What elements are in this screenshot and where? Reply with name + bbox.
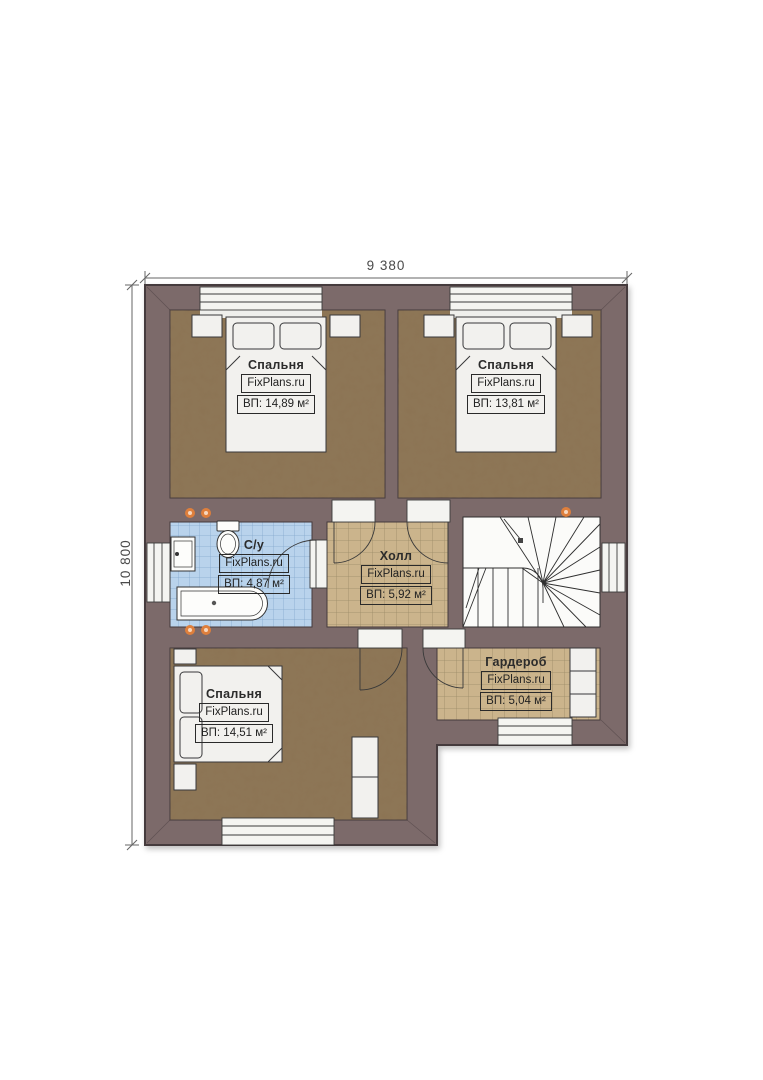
room-name: Спальня — [206, 687, 262, 701]
window-right-stairs-icon — [602, 543, 625, 592]
brand-label: FixPlans.ru — [481, 671, 551, 690]
window-top-left-icon — [200, 287, 322, 318]
room-label-hall: Холл FixPlans.ru ВП: 5,92 м² — [338, 549, 454, 605]
window-top-right-icon — [450, 287, 572, 318]
dimension-width-label: 9 380 — [145, 258, 627, 273]
room-name: С/у — [244, 538, 264, 552]
brand-label: FixPlans.ru — [219, 554, 289, 573]
floor-plan-drawing — [0, 0, 763, 1080]
brand-label: FixPlans.ru — [471, 374, 541, 393]
room-name: Холл — [380, 549, 413, 563]
room-area: ВП: 14,89 м² — [237, 395, 315, 414]
room-name: Спальня — [478, 358, 534, 372]
brand-label: FixPlans.ru — [241, 374, 311, 393]
room-name: Спальня — [248, 358, 304, 372]
sink-icon — [171, 537, 195, 571]
room-area: ВП: 5,04 м² — [480, 692, 552, 711]
dimension-height-label: 10 800 — [118, 523, 134, 603]
room-name: Гардероб — [485, 655, 546, 669]
brand-label: FixPlans.ru — [199, 703, 269, 722]
room-label-bathroom: С/у FixPlans.ru ВП: 4,87 м² — [196, 538, 312, 594]
closet-bedroom-bottom-icon — [352, 737, 378, 818]
brand-label: FixPlans.ru — [361, 565, 431, 584]
room-label-wardrobe: Гардероб FixPlans.ru ВП: 5,04 м² — [458, 655, 574, 711]
room-area: ВП: 5,92 м² — [360, 586, 432, 605]
room-area: ВП: 13,81 м² — [467, 395, 545, 414]
window-bottom-bedroom-icon — [222, 818, 334, 845]
room-area: ВП: 4,87 м² — [218, 575, 290, 594]
floor-plan-page: 9 380 10 800 Спальня FixPlans.ru ВП: 14,… — [0, 0, 763, 1080]
room-area: ВП: 14,51 м² — [195, 724, 273, 743]
room-label-bedroom-top-left: Спальня FixPlans.ru ВП: 14,89 м² — [206, 358, 346, 414]
room-label-bedroom-top-right: Спальня FixPlans.ru ВП: 13,81 м² — [436, 358, 576, 414]
room-label-bedroom-bottom: Спальня FixPlans.ru ВП: 14,51 м² — [176, 687, 292, 743]
window-wardrobe-icon — [498, 718, 572, 745]
window-left-bathroom-icon — [147, 543, 170, 602]
